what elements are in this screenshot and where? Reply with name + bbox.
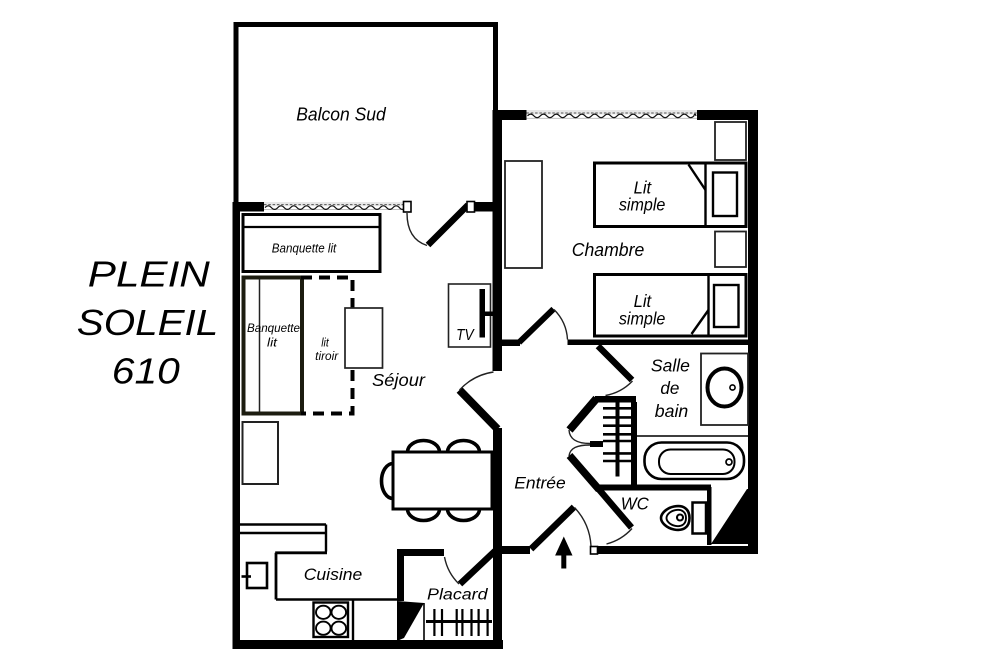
svg-text:tiroir: tiroir: [315, 351, 339, 363]
svg-text:simple: simple: [619, 308, 666, 328]
svg-text:WC: WC: [621, 493, 649, 513]
svg-text:simple: simple: [619, 194, 666, 214]
svg-text:Banquette: Banquette: [247, 323, 300, 335]
svg-text:610: 610: [112, 351, 180, 392]
svg-text:lit: lit: [321, 338, 329, 350]
svg-text:Placard: Placard: [427, 587, 489, 604]
svg-text:Cuisine: Cuisine: [304, 565, 363, 584]
svg-text:Banquette lit: Banquette lit: [272, 241, 338, 256]
svg-text:TV: TV: [456, 327, 475, 344]
svg-text:PLEIN: PLEIN: [88, 254, 211, 295]
svg-text:Séjour: Séjour: [372, 370, 426, 390]
svg-text:de: de: [660, 378, 679, 398]
svg-text:lit: lit: [267, 338, 278, 350]
svg-text:Chambre: Chambre: [572, 239, 645, 260]
svg-text:Balcon Sud: Balcon Sud: [296, 105, 386, 125]
svg-text:Salle: Salle: [651, 356, 690, 376]
svg-text:Entrée: Entrée: [514, 473, 566, 492]
svg-text:bain: bain: [655, 401, 689, 421]
svg-text:SOLEIL: SOLEIL: [77, 302, 219, 343]
